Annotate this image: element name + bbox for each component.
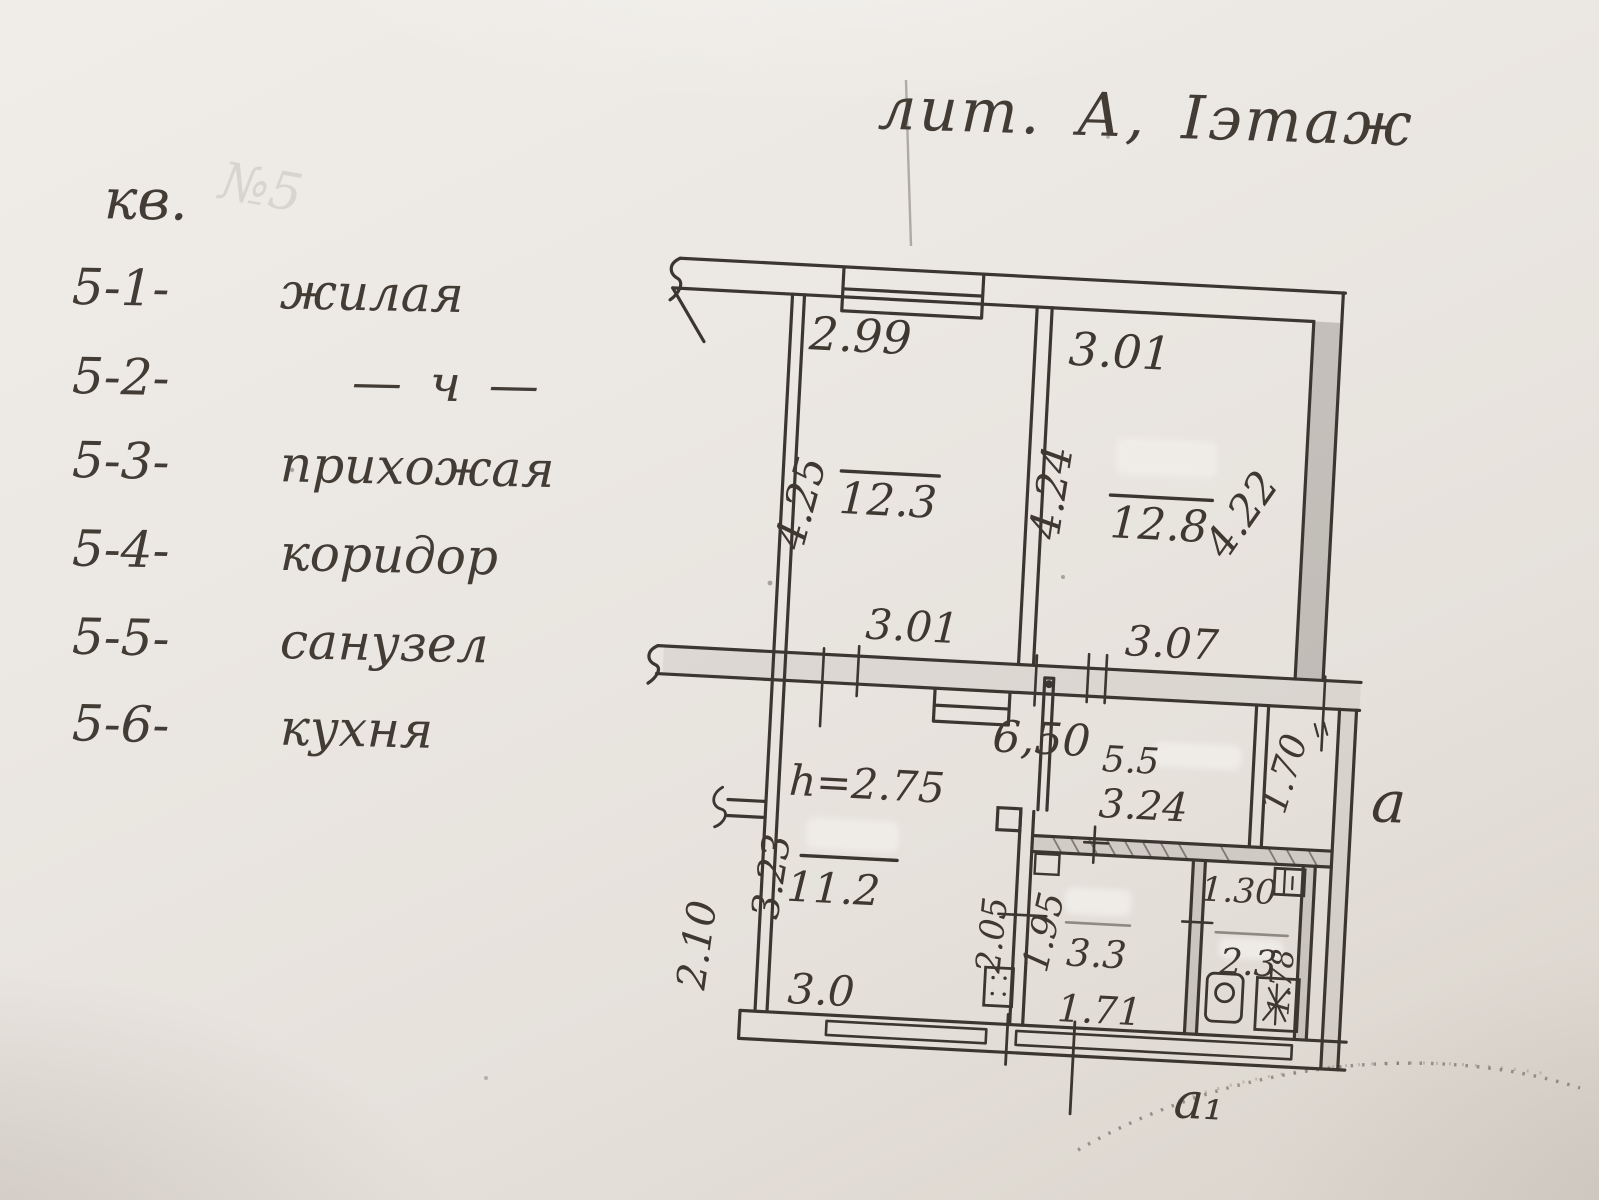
paper-speck — [768, 581, 773, 586]
top-wall-outer — [680, 258, 1345, 293]
dim-room1-top: 2.99 — [807, 306, 913, 365]
scanned-floor-plan-page: лит. А, Іэтаж кв. №5 5-1-жилая 5-2-— ч —… — [0, 0, 1599, 1200]
door-frame-stub — [997, 808, 1021, 831]
area-hall: 11.2 — [786, 862, 882, 916]
dim-bath-outer-left: 2.05 — [968, 895, 1016, 975]
dim-bath-bottom: 1.71 — [1056, 986, 1143, 1034]
area-bath: 3.3 — [1065, 930, 1128, 977]
paper-speck — [1061, 575, 1065, 579]
dim-kitchen-width: 3.24 — [1098, 781, 1189, 832]
area-room1: 12.3 — [838, 473, 939, 529]
ceiling-height-note: h=2.75 — [788, 756, 946, 813]
dim-room2-top: 3.01 — [1067, 322, 1172, 381]
window-bottom-hall — [826, 1021, 987, 1043]
dim-hall-bottom: 3.0 — [787, 964, 856, 1016]
paper-crease — [906, 80, 911, 246]
dim-wc-top: 1.30 — [1200, 869, 1278, 913]
dim-kitchen-depth: 1.70 — [1254, 729, 1317, 818]
annex-sub-label: a₁ — [1172, 1071, 1225, 1132]
bath-fixture — [1035, 854, 1060, 875]
dim-hall-outer-left: 2.10 — [668, 898, 726, 994]
plan-body: 2.99 3.01 4.25 4.24 4.22 12.3 12.8 3.01 … — [626, 258, 1433, 1141]
dimension-tick — [1182, 921, 1212, 923]
dim-total-width: 6,50 — [991, 711, 1092, 767]
top-wall-inner — [673, 288, 1314, 322]
paper-speck — [290, 468, 294, 472]
gas-appliance-dots — [990, 976, 1006, 996]
dim-room2-bottom: 3.07 — [1124, 616, 1220, 670]
dim-wc-right: 1.78 — [1261, 948, 1302, 1018]
handwritten-squiggle — [712, 787, 727, 828]
dim-room1-left: 4.25 — [764, 451, 836, 555]
wall-break-mark — [648, 645, 660, 683]
annex-label: a — [1370, 767, 1408, 837]
area-room2: 12.8 — [1109, 497, 1210, 553]
towel-rail-glyph — [1284, 869, 1293, 895]
left-wall-jog — [727, 799, 766, 817]
dim-room1-bottom: 3.01 — [864, 599, 960, 653]
area-kitchen: 5.5 — [1101, 739, 1160, 783]
paper-speck — [484, 1076, 488, 1080]
stamp-edge-arc — [1078, 1063, 1580, 1150]
paper-speck — [1106, 135, 1110, 139]
floor-plan-drawing: 2.99 3.01 4.25 4.24 4.22 12.3 12.8 3.01 … — [0, 0, 1599, 1200]
dim-bath-left: 1.95 — [1015, 889, 1073, 976]
stamp-edge-arc-faint — [1180, 1063, 1548, 1100]
toilet-bowl — [1215, 983, 1234, 1002]
